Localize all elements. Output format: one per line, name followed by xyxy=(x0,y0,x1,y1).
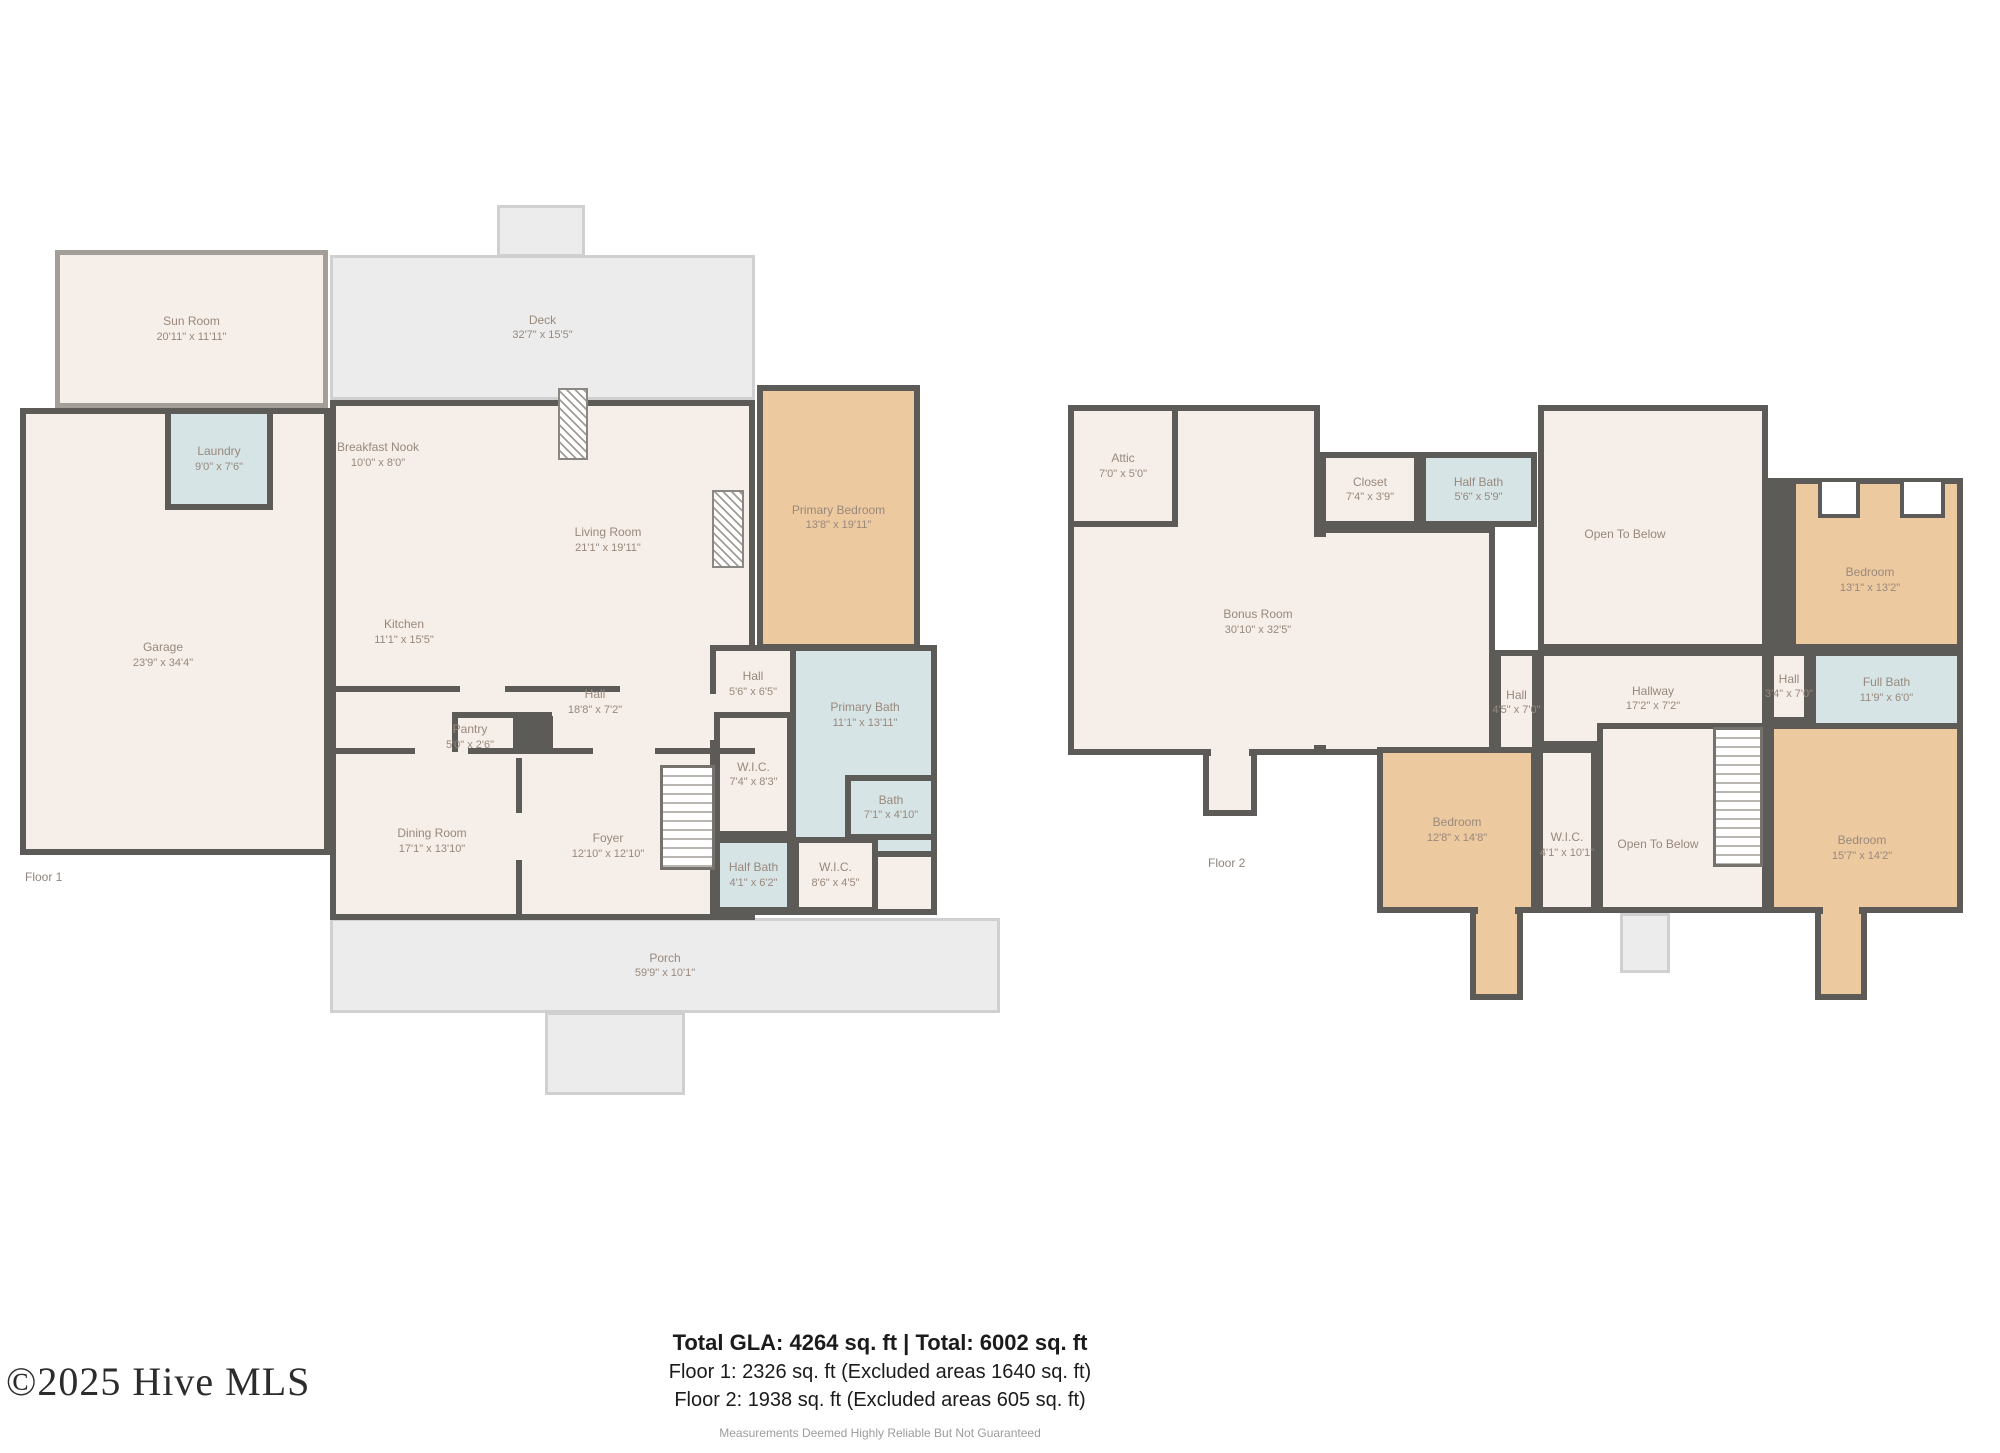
bonus-room-label-label: Bonus Room30'10" x 32'5" xyxy=(1223,607,1292,637)
copyright-watermark: ©2025 Hive MLS xyxy=(6,1358,310,1405)
hall-main-label: Hall18'8" x 7'2" xyxy=(568,687,622,717)
hallway-label: Hallway17'2" x 7'2" xyxy=(1626,684,1680,714)
floor-tag-2: Floor 2 xyxy=(1208,856,1245,870)
foyer-label: Foyer12'10" x 12'10" xyxy=(572,831,645,861)
floor-plan-canvas: Deck32'7" x 15'5"Porch59'9" x 10'1"Sun R… xyxy=(0,0,2000,1453)
bonus-room-ext xyxy=(1320,527,1495,755)
hall-suite-label: Hall5'6" x 6'5" xyxy=(729,669,777,699)
wic-f2-label: W.I.C.4'1" x 10'1" xyxy=(1540,830,1594,860)
stoop xyxy=(1620,913,1670,973)
wic-1-label: W.I.C.7'4" x 8'3" xyxy=(729,760,777,790)
wic-2-label: W.I.C.8'6" x 4'5" xyxy=(811,860,859,890)
closet-label: Closet7'4" x 3'9" xyxy=(1346,475,1394,505)
bedroom-2-label: Bedroom12'8" x 14'8" xyxy=(1427,815,1487,845)
primary-bath-label: Primary Bath11'1" x 13'11" xyxy=(830,700,899,730)
floor2-area-text: Floor 2: 1938 sq. ft (Excluded areas 605… xyxy=(330,1389,1430,1412)
dining-room-label: Dining Room17'1" x 13'10" xyxy=(397,826,466,856)
living-room-label: Living Room21'1" x 19'11" xyxy=(575,525,642,555)
sun-room-label: Sun Room20'11" x 11'11" xyxy=(156,314,226,344)
bonus-opening xyxy=(1310,537,1332,745)
kitchen-label: Kitchen11'1" x 15'5" xyxy=(374,617,434,647)
primary-bedroom-label: Primary Bedroom13'8" x 19'11" xyxy=(792,503,885,533)
closet-nook xyxy=(1818,478,1860,518)
disclaimer-text: Measurements Deemed Highly Reliable But … xyxy=(330,1426,1430,1440)
bedroom-3 xyxy=(1768,723,1963,913)
bedroom-3-nook xyxy=(1815,908,1867,1000)
stairs-down xyxy=(1713,727,1763,867)
hall-a-label: Hall4'5" x 7'0" xyxy=(1492,688,1540,718)
landing-opening xyxy=(1211,744,1249,760)
bedroom-3-opening xyxy=(1823,901,1859,919)
closet-nook xyxy=(1900,478,1945,518)
half-bath-label: Half Bath4'1" x 6'2" xyxy=(729,860,778,890)
measurement-summary: Total GLA: 4264 sq. ft | Total: 6002 sq.… xyxy=(330,1330,1430,1440)
bedroom-1-label: Bedroom13'1" x 13'2" xyxy=(1840,565,1900,595)
floor-tag-1: Floor 1 xyxy=(25,870,62,884)
floor1-area-text: Floor 1: 2326 sq. ft (Excluded areas 164… xyxy=(330,1361,1430,1384)
bedroom-3-label: Bedroom15'7" x 14'2" xyxy=(1832,833,1892,863)
porch-label: Porch59'9" x 10'1" xyxy=(635,951,695,981)
hall-b-label: Hall3'4" x 7'0" xyxy=(1765,672,1813,702)
total-gla-text: Total GLA: 4264 sq. ft | Total: 6002 sq.… xyxy=(330,1330,1430,1356)
full-bath-label: Full Bath11'9" x 6'0" xyxy=(1860,675,1913,705)
deck-label: Deck32'7" x 15'5" xyxy=(512,313,572,343)
bath-label: Bath7'1" x 4'10" xyxy=(864,793,918,823)
attic-label: Attic7'0" x 5'0" xyxy=(1099,451,1147,481)
garage-label: Garage23'9" x 34'4" xyxy=(133,640,193,670)
open-to-below-upper-label: Open To Below xyxy=(1584,527,1665,543)
bedroom-2-opening xyxy=(1478,901,1515,919)
breakfast-nook-label: Breakfast Nook10'0" x 8'0" xyxy=(337,440,419,470)
open-to-below-lower-label: Open To Below xyxy=(1617,837,1698,853)
bedroom-2-nook xyxy=(1470,908,1523,1000)
laundry-label: Laundry9'0" x 7'6" xyxy=(195,444,243,474)
floor-plan-2: Bonus Room30'10" x 32'5"Attic7'0" x 5'0"… xyxy=(0,0,2000,1453)
half-bath-f2-label: Half Bath5'6" x 5'9" xyxy=(1454,475,1503,505)
pantry-label: Pantry5'0" x 2'6" xyxy=(446,722,494,752)
